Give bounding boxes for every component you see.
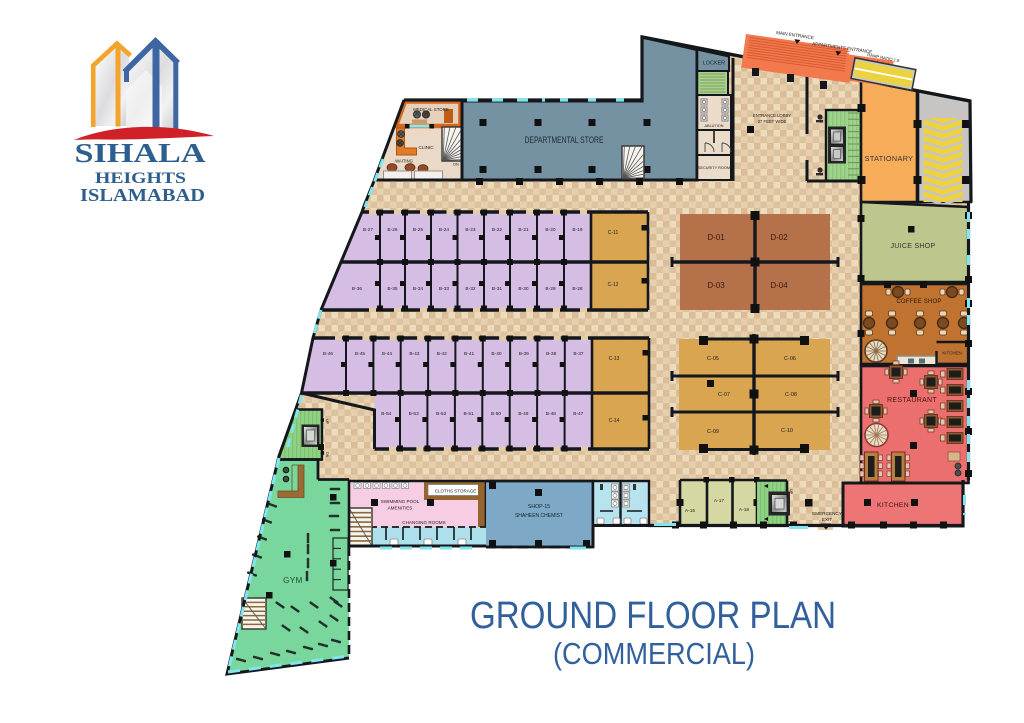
svg-text:ENTRANCE LOBBY: ENTRANCE LOBBY — [753, 113, 791, 118]
svg-text:B-40: B-40 — [491, 351, 501, 357]
svg-text:B-29: B-29 — [545, 286, 555, 292]
svg-text:B-45: B-45 — [355, 351, 365, 357]
svg-text:B-20: B-20 — [545, 227, 555, 233]
svg-text:CHANGING ROOMS: CHANGING ROOMS — [402, 520, 445, 525]
svg-text:A-17: A-17 — [714, 498, 724, 504]
svg-text:C-08: C-08 — [785, 392, 797, 398]
svg-text:B-47: B-47 — [573, 411, 583, 417]
svg-text:SECURITY ROOM: SECURITY ROOM — [698, 166, 730, 170]
svg-text:JUICE SHOP: JUICE SHOP — [890, 243, 935, 250]
svg-text:B-25: B-25 — [413, 227, 423, 233]
svg-text:C-12: C-12 — [608, 282, 619, 288]
svg-text:AMENITIES: AMENITIES — [388, 506, 413, 511]
svg-text:C-11: C-11 — [608, 230, 619, 236]
svg-text:B-35: B-35 — [387, 286, 397, 292]
svg-text:EMERGENCY: EMERGENCY — [812, 511, 842, 516]
svg-text:B-31: B-31 — [492, 286, 502, 292]
svg-text:C-07: C-07 — [718, 392, 730, 398]
svg-text:GROUND FLOOR PLAN: GROUND FLOOR PLAN — [470, 595, 836, 637]
svg-text:C-06: C-06 — [784, 356, 796, 362]
svg-text:B-26: B-26 — [387, 227, 397, 233]
svg-text:B-21: B-21 — [518, 227, 528, 233]
svg-text:ISLAMABAD: ISLAMABAD — [80, 185, 205, 205]
svg-text:B-23: B-23 — [465, 227, 475, 233]
svg-text:WAITING: WAITING — [395, 159, 413, 164]
svg-text:B-52: B-52 — [436, 411, 446, 417]
svg-text:B-43: B-43 — [409, 351, 419, 357]
svg-text:SIHALA: SIHALA — [75, 138, 207, 168]
svg-text:B-36: B-36 — [352, 286, 362, 292]
svg-text:B-37: B-37 — [573, 351, 583, 357]
svg-text:A-18: A-18 — [739, 507, 749, 513]
svg-text:D-03: D-03 — [707, 281, 725, 290]
svg-text:B-39: B-39 — [519, 351, 529, 357]
svg-text:SWIMMING POOL: SWIMMING POOL — [381, 499, 420, 504]
svg-text:LOCKER: LOCKER — [703, 61, 725, 67]
svg-text:B-50: B-50 — [491, 411, 501, 417]
svg-text:B-44: B-44 — [382, 351, 392, 357]
svg-text:B-38: B-38 — [546, 351, 556, 357]
svg-text:B-51: B-51 — [464, 411, 474, 417]
svg-text:EXIT: EXIT — [822, 517, 832, 522]
svg-text:C-14: C-14 — [609, 418, 620, 424]
svg-text:D-01: D-01 — [707, 233, 725, 242]
svg-text:B-28: B-28 — [572, 286, 582, 292]
svg-text:CLOTHS STORAGE: CLOTHS STORAGE — [435, 489, 476, 494]
svg-text:B-48: B-48 — [546, 411, 556, 417]
svg-text:B-49: B-49 — [518, 411, 528, 417]
svg-text:C-05: C-05 — [707, 356, 719, 362]
svg-text:KITCHEN: KITCHEN — [877, 502, 909, 509]
svg-text:RESTAURANT: RESTAURANT — [887, 397, 937, 404]
svg-text:C-10: C-10 — [781, 428, 793, 434]
svg-text:B-33: B-33 — [439, 286, 449, 292]
svg-text:B-24: B-24 — [439, 227, 449, 233]
svg-text:B-22: B-22 — [492, 227, 502, 233]
svg-text:ABLUTION: ABLUTION — [705, 124, 724, 128]
svg-text:UP: UP — [789, 489, 793, 495]
svg-text:B-30: B-30 — [518, 286, 528, 292]
svg-text:A-16: A-16 — [685, 508, 695, 514]
svg-text:B-46: B-46 — [323, 351, 333, 357]
svg-text:D-04: D-04 — [770, 281, 788, 290]
svg-text:D-02: D-02 — [770, 233, 788, 242]
svg-text:DN: DN — [325, 452, 329, 458]
svg-text:UP: UP — [325, 419, 329, 425]
svg-text:GYM: GYM — [283, 576, 303, 585]
svg-text:B-41: B-41 — [464, 351, 474, 357]
svg-text:C-13: C-13 — [609, 356, 620, 362]
svg-text:27 FEET WIDE: 27 FEET WIDE — [758, 119, 787, 124]
svg-text:COFFEE SHOP: COFFEE SHOP — [896, 299, 941, 305]
svg-text:B-53: B-53 — [409, 411, 419, 417]
svg-text:B-27: B-27 — [363, 227, 373, 233]
svg-text:STATIONARY: STATIONARY — [865, 154, 914, 163]
svg-text:KITCHEN: KITCHEN — [942, 351, 961, 356]
svg-text:DEPARTMENTAL STORE: DEPARTMENTAL STORE — [525, 135, 604, 145]
svg-text:B-19: B-19 — [572, 227, 582, 233]
svg-text:B-32: B-32 — [465, 286, 475, 292]
svg-text:MEDICAL STORE: MEDICAL STORE — [413, 107, 449, 112]
svg-text:MAIN ENTRANCE: MAIN ENTRANCE — [776, 30, 814, 40]
svg-text:(COMMERCIAL): (COMMERCIAL) — [553, 636, 755, 671]
svg-text:SHAHEEN CHEMIST: SHAHEEN CHEMIST — [515, 513, 563, 519]
svg-text:B-42: B-42 — [437, 351, 447, 357]
svg-text:SHOP-15: SHOP-15 — [528, 504, 550, 510]
svg-text:B-54: B-54 — [381, 411, 391, 417]
svg-text:CLINIC: CLINIC — [418, 145, 434, 150]
svg-text:C-09: C-09 — [707, 429, 719, 435]
svg-text:DN: DN — [453, 163, 459, 167]
svg-text:B-34: B-34 — [413, 286, 423, 292]
